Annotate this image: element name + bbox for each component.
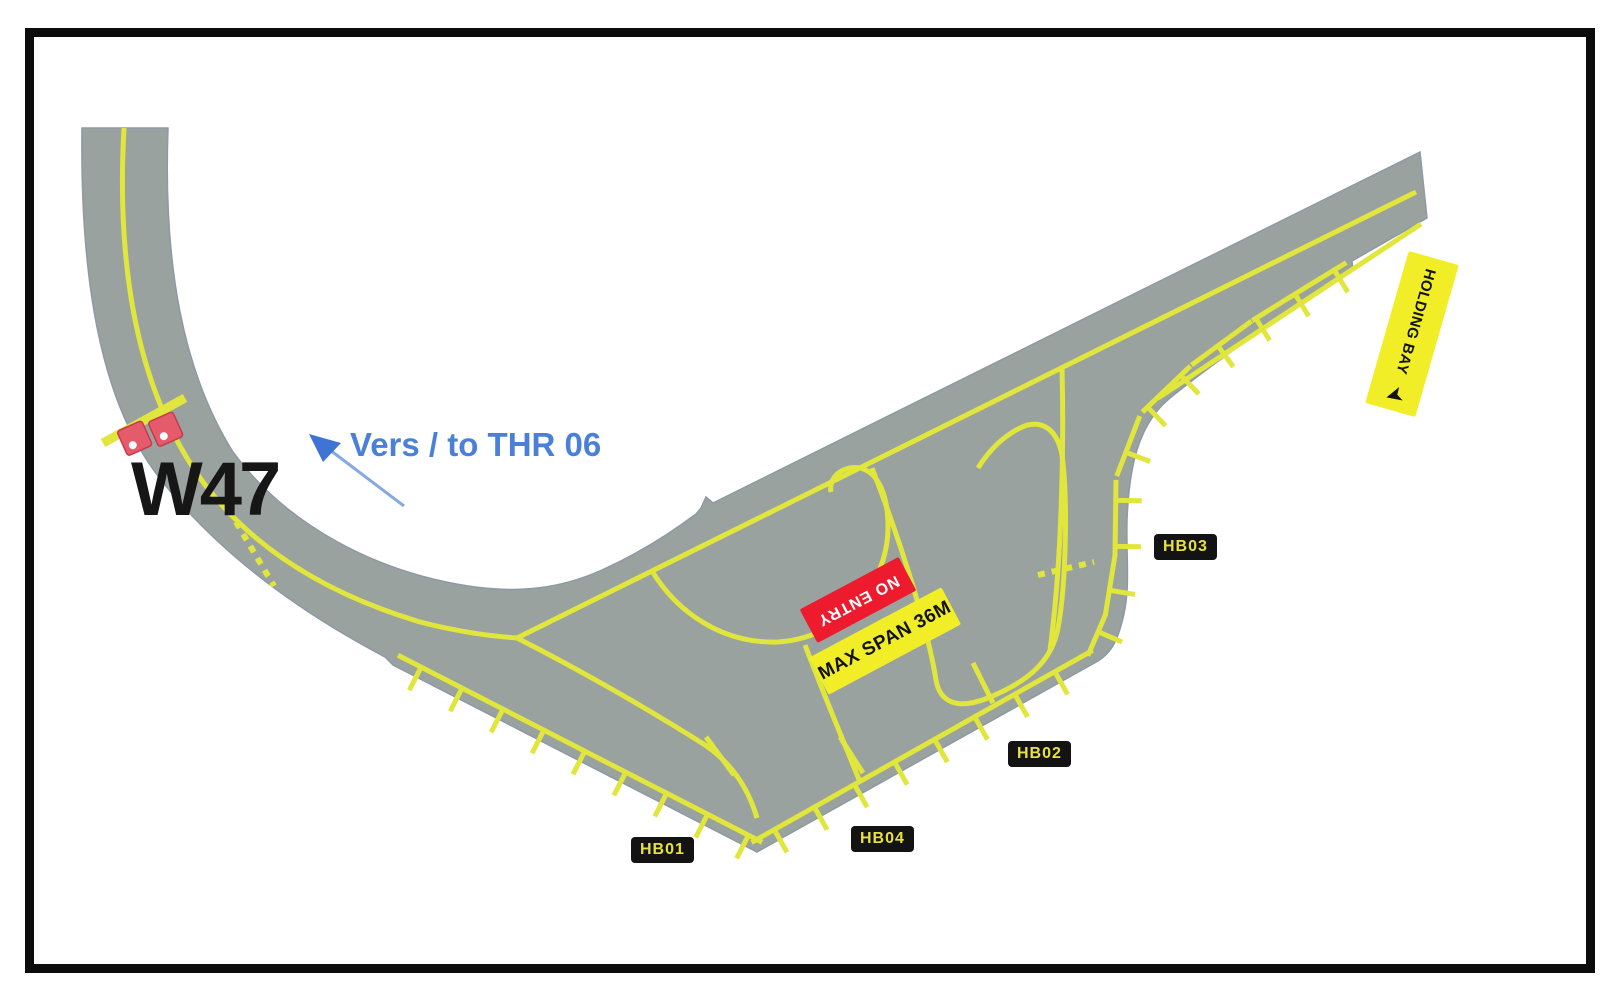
holding-bay-arrow-icon: ➤ [1382,381,1406,411]
taxiway-designator-label: W47 [131,452,278,528]
taxiway-pavement [82,128,1427,852]
direction-note-label: Vers / to THR 06 [350,428,601,461]
holding-point-label-hb04: HB04 [851,826,914,852]
holding-point-label-hb01: HB01 [631,837,694,863]
holding-point-label-hb02: HB02 [1008,741,1071,767]
airport-holding-bay-chart: W47 Vers / to THR 06 NO ENTRY MAX SPAN 3… [0,0,1613,991]
holding-point-label-hb03: HB03 [1154,534,1217,560]
